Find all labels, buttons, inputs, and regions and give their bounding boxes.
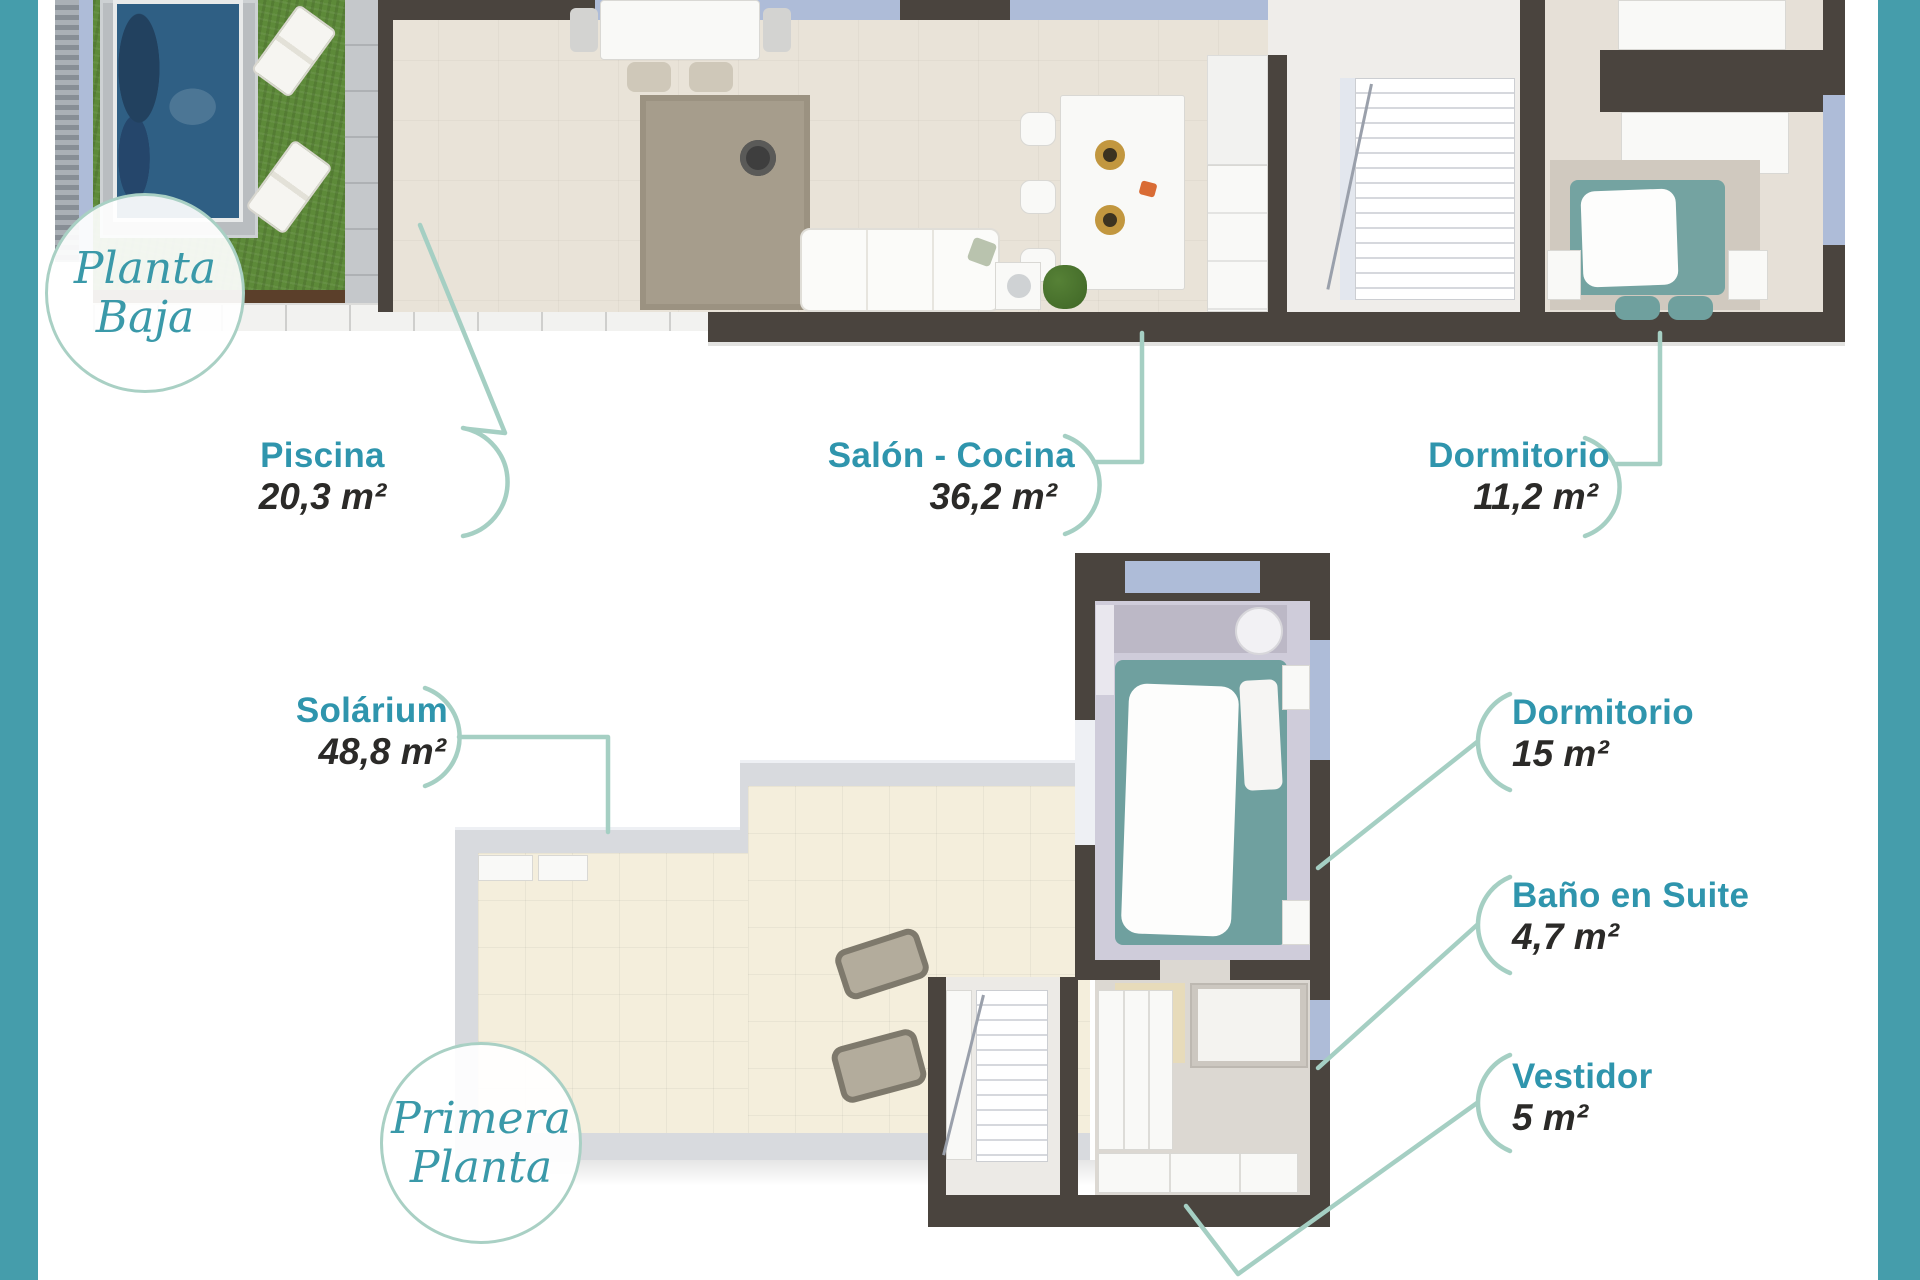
kitchen-counter bbox=[1207, 165, 1268, 312]
suite-cabinet bbox=[1618, 0, 1786, 50]
window bbox=[1125, 561, 1260, 593]
window bbox=[1823, 95, 1845, 245]
room-area: 15 m² bbox=[1512, 734, 1842, 774]
room-area: 11,2 m² bbox=[1370, 477, 1598, 517]
robot-vacuum bbox=[740, 140, 776, 176]
bar-stool bbox=[1020, 180, 1056, 214]
wardrobe bbox=[1098, 990, 1173, 1150]
room-name: Solárium bbox=[225, 692, 448, 730]
nightstand bbox=[1547, 250, 1581, 300]
room-area: 48,8 m² bbox=[225, 732, 446, 772]
wall bbox=[378, 0, 595, 20]
kitchen-counter bbox=[1207, 55, 1268, 165]
room-label-vestidor: Vestidor 5 m² bbox=[1512, 1058, 1812, 1138]
sofa bbox=[800, 228, 1000, 312]
wall bbox=[900, 0, 1010, 20]
dining-chair bbox=[570, 8, 598, 52]
desk-stool bbox=[1235, 607, 1283, 655]
vanity bbox=[1098, 1153, 1298, 1193]
planta-baja-badge: Planta Baja bbox=[45, 193, 245, 393]
room-label-solarium: Solárium 48,8 m² bbox=[225, 692, 448, 772]
wall bbox=[928, 977, 946, 1227]
swimming-pool bbox=[113, 0, 243, 222]
kitchen-island bbox=[1060, 95, 1185, 290]
shelf bbox=[1096, 605, 1114, 695]
badge-line: Primera bbox=[391, 1094, 571, 1143]
wall bbox=[378, 0, 393, 312]
room-name: Baño en Suite bbox=[1512, 877, 1882, 915]
wall bbox=[1268, 55, 1287, 312]
room-name: Salón - Cocina bbox=[795, 437, 1075, 475]
badge-line: Planta bbox=[74, 244, 216, 293]
leader-dormitorio-pb bbox=[1614, 333, 1660, 464]
wall bbox=[1520, 0, 1545, 312]
window bbox=[1310, 1000, 1330, 1060]
room-label-piscina: Piscina 20,3 m² bbox=[225, 437, 420, 517]
dining-table bbox=[600, 0, 760, 60]
ac-fan bbox=[1007, 274, 1031, 298]
room-name: Vestidor bbox=[1512, 1058, 1812, 1096]
pendant-light bbox=[1095, 140, 1125, 170]
room-name: Piscina bbox=[225, 437, 420, 475]
staircase bbox=[1355, 78, 1515, 300]
dining-chair bbox=[627, 62, 671, 92]
bed-duvet bbox=[1121, 683, 1240, 937]
room-label-bano-en-suite: Baño en Suite 4,7 m² bbox=[1512, 877, 1882, 957]
terrace-parapet bbox=[455, 827, 750, 855]
shower-tray bbox=[1198, 989, 1300, 1061]
room-name: Dormitorio bbox=[1370, 437, 1610, 475]
pouf bbox=[1615, 296, 1660, 320]
room-area: 5 m² bbox=[1512, 1098, 1812, 1138]
terrace-parapet bbox=[750, 760, 1075, 788]
arc-piscina bbox=[463, 428, 508, 536]
room-label-salon-cocina: Salón - Cocina 36,2 m² bbox=[795, 437, 1075, 517]
room-area: 20,3 m² bbox=[225, 477, 420, 517]
leader-bano bbox=[1318, 925, 1477, 1068]
room-area: 36,2 m² bbox=[795, 477, 1057, 517]
tile-path bbox=[345, 0, 378, 303]
arc-bano bbox=[1478, 877, 1510, 973]
left-teal-stripe bbox=[0, 0, 38, 1280]
bed-duvet bbox=[1580, 188, 1678, 287]
staircase bbox=[976, 990, 1048, 1162]
ground-floor-plan bbox=[55, 0, 1845, 350]
bar-stool bbox=[1020, 112, 1056, 146]
bed-pillow bbox=[1239, 679, 1283, 791]
dining-chair bbox=[689, 62, 733, 92]
dining-chair bbox=[763, 8, 791, 52]
wall bbox=[928, 1195, 1330, 1227]
badge-line: Baja bbox=[96, 293, 194, 342]
arc-dormitorio-pp bbox=[1478, 694, 1510, 790]
leader-dormitorio-pp bbox=[1318, 742, 1477, 868]
nightstand bbox=[1282, 665, 1310, 710]
room-name: Dormitorio bbox=[1512, 694, 1842, 732]
nightstand bbox=[1728, 250, 1768, 300]
window bbox=[1310, 640, 1330, 760]
room-label-dormitorio-pb: Dormitorio 11,2 m² bbox=[1370, 437, 1610, 517]
nightstand bbox=[1282, 900, 1310, 945]
wall bbox=[1060, 977, 1078, 1227]
terrace-sill bbox=[708, 342, 1845, 346]
primera-planta-badge: Primera Planta bbox=[380, 1042, 582, 1244]
floor-plan-page: Planta Baja Primera Planta Piscina 20,3 … bbox=[0, 0, 1920, 1280]
badge-line: Planta bbox=[410, 1143, 552, 1192]
pouf bbox=[1668, 296, 1713, 320]
room-label-dormitorio-pp: Dormitorio 15 m² bbox=[1512, 694, 1842, 774]
leader-salon bbox=[1094, 333, 1142, 462]
wall bbox=[1600, 50, 1845, 112]
room-area: 4,7 m² bbox=[1512, 917, 1882, 957]
plant bbox=[1043, 265, 1087, 309]
planter bbox=[478, 855, 533, 881]
arc-vestidor bbox=[1478, 1055, 1510, 1151]
pendant-light bbox=[1095, 205, 1125, 235]
area-rug bbox=[640, 95, 810, 310]
door-opening bbox=[1160, 960, 1230, 980]
planter bbox=[538, 855, 588, 881]
right-teal-stripe bbox=[1878, 0, 1920, 1280]
door-opening bbox=[1075, 720, 1095, 845]
